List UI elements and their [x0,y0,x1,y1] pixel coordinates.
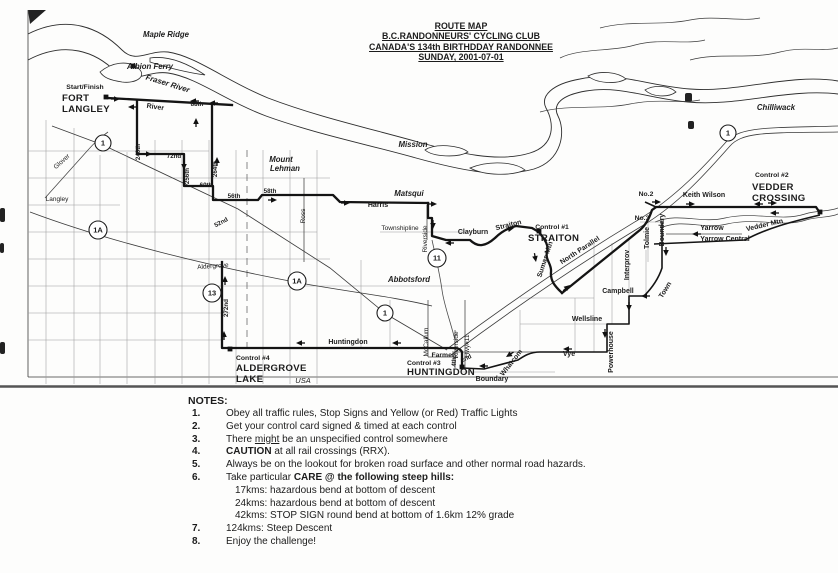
svg-text:1: 1 [101,139,105,148]
map-label: USA [295,376,310,385]
map-label: Langley [46,196,70,203]
note-text: Get your control card signed & timed at … [226,421,836,434]
note-number: 2. [188,421,226,434]
map-label: Mount [269,155,293,164]
note-number: 6. [188,472,226,485]
map-label: LANGLEY [62,104,110,115]
note-item: 2.Get your control card signed & timed a… [188,421,836,434]
control-dot [104,95,109,100]
map-label: Huntingdon [328,339,367,346]
map-label: Fraser River [145,73,192,95]
route-direction-arrow [770,210,779,216]
note-item: 5.Always be on the lookout for broken ro… [188,459,836,472]
map-label: Boundary [659,214,666,247]
map-label: 56th [228,193,241,200]
map-label: Yarrow Central [700,236,749,243]
note-item: 4.CAUTION at all rail crossings (RRX). [188,446,836,459]
highway-marker: 1A [89,221,107,239]
map-label: Riverside [453,331,460,358]
route-direction-arrow [652,199,661,205]
svg-text:11: 11 [433,254,441,263]
title-line-2: B.C.RANDONNEURS' CYCLING CLUB [311,31,611,41]
note-text: Take particular CARE @ the following ste… [226,472,836,485]
notes-section: NOTES: 1.Obey all traffic rules, Stop Si… [188,394,836,549]
note-text: 124kms: Steep Descent [226,523,836,536]
map-label: Powerhouse [608,331,615,373]
note-text: Enjoy the challenge! [226,536,836,549]
notes-heading: NOTES: [188,394,836,408]
svg-text:1A: 1A [292,277,302,286]
map-label: Albion Ferry [126,62,174,71]
highway-marker: 1 [95,135,111,151]
map-title: ROUTE MAP B.C.RANDONNEURS' CYCLING CLUB … [311,21,611,63]
route-direction-arrow [626,302,632,311]
map-label: Keith Wilson [683,192,725,199]
map-label: Lehman [270,164,300,173]
note-number: 8. [188,536,226,549]
map-label: CROSSING [752,193,806,204]
map-label: Wellsline [572,316,602,323]
map-label: Control #3 [407,360,441,367]
map-label: Mission [398,140,427,149]
map-label: Start/Finish [66,84,103,91]
route-direction-arrow [532,253,539,263]
route-direction-arrow [392,340,401,346]
map-label: Control #4 [236,355,270,362]
svg-text:13: 13 [208,289,216,298]
svg-text:1: 1 [383,309,387,318]
map-label: ALDERGROVE [236,363,307,374]
map-label: River [146,103,165,112]
note-subitem: 42kms: STOP SIGN round bend at bottom of… [235,510,836,523]
map-label: LAKE [236,374,264,385]
map-label: 264th [212,161,219,177]
map-label: Control #1 [535,224,569,231]
route-direction-arrow [193,118,199,127]
map-label: 58th [264,188,277,195]
map-label: 240th [135,144,142,160]
map-label: No.2 [639,191,654,198]
title-line-3: CANADA'S 134th BIRTHDDAY RANDONNEE [311,42,611,52]
control-dot [228,347,233,352]
map-label: FORT [62,93,89,104]
route-direction-arrow [428,201,437,207]
map-label: Riverside [422,225,429,252]
note-subitem: 24kms: hazardous bend at bottom of desce… [235,498,836,511]
map-label: 256th [184,168,191,184]
map-label: Boundary [476,376,509,383]
map-label: 52nd [213,216,229,229]
note-text: Obey all traffic rules, Stop Signs and Y… [226,408,836,421]
title-line-1: ROUTE MAP [311,21,611,31]
map-label: Tolmie [644,227,651,249]
route-direction-arrow [641,293,650,299]
map-label: Glover [53,152,73,171]
note-text: Always be on the lookout for broken road… [226,459,836,472]
note-subitem: 17kms: hazardous bend at bottom of desce… [235,485,836,498]
highway-marker: 1 [377,305,393,321]
map-label: Chilliwack [757,103,796,112]
map-label: Vye [563,351,575,358]
map-label: STRAITON [528,233,579,244]
map-label: Ross [300,208,307,224]
note-item: 3.There might be an unspecified control … [188,434,836,447]
map-label: Abbotsford [387,275,430,284]
map-label: 88th [191,101,204,108]
note-number: 7. [188,523,226,536]
map-label: Control #2 [755,172,789,179]
route-direction-arrow [111,96,120,102]
control-dot [818,210,823,215]
route-direction-arrow [143,151,152,157]
title-line-4: SUNDAY, 2001-07-01 [311,52,611,62]
note-number: 4. [188,446,226,459]
map-label: Interprov [624,250,631,280]
svg-text:1A: 1A [93,226,103,235]
map-label: VEDDER [752,182,794,193]
route-map-page: 1111A1A1311 Maple RidgeAlbion FerryFrase… [0,0,838,573]
note-number: 5. [188,459,226,472]
map-label: Aldergrove [197,262,229,271]
map-label: Maple Ridge [143,30,190,39]
route-direction-arrow [296,340,305,346]
note-text: There might be an unspecified control so… [226,434,836,447]
svg-text:1: 1 [726,129,730,138]
map-label: HUNTINGDON [407,367,475,378]
highway-markers: 1111A1A1311 [89,125,736,321]
note-number: 1. [188,408,226,421]
map-label: 272nd [223,299,230,317]
map-label: 4th [451,357,458,367]
map-label: 60th [200,182,213,189]
map-label: Harris [368,202,388,209]
map-label: 72nd [167,153,182,160]
route-direction-arrow [128,104,137,110]
map-label: McCallum [423,328,430,357]
highway-marker: 13 [203,284,221,302]
highway-marker: 11 [428,249,446,267]
map-label: Townshipline [381,225,419,232]
map-label: No.3 [635,215,650,222]
map-label: Town [658,281,673,300]
map-label: Clayburn [458,229,488,236]
highway-marker: 1A [288,272,306,290]
note-item: 7.124kms: Steep Descent [188,523,836,536]
route-direction-arrow [663,247,669,256]
map-label: Yarrow [700,225,724,232]
map-label: Campbell [602,288,634,295]
map-label: Matsqui [394,189,424,198]
route-direction-arrow [268,197,277,203]
note-item: 6.Take particular CARE @ the following s… [188,472,836,485]
highway-marker: 1 [720,125,736,141]
notes-list: 1.Obey all traffic rules, Stop Signs and… [188,408,836,549]
note-item: 8.Enjoy the challenge! [188,536,836,549]
note-number: 3. [188,434,226,447]
note-text: CAUTION at all rail crossings (RRX). [226,446,836,459]
note-item: 1.Obey all traffic rules, Stop Signs and… [188,408,836,421]
